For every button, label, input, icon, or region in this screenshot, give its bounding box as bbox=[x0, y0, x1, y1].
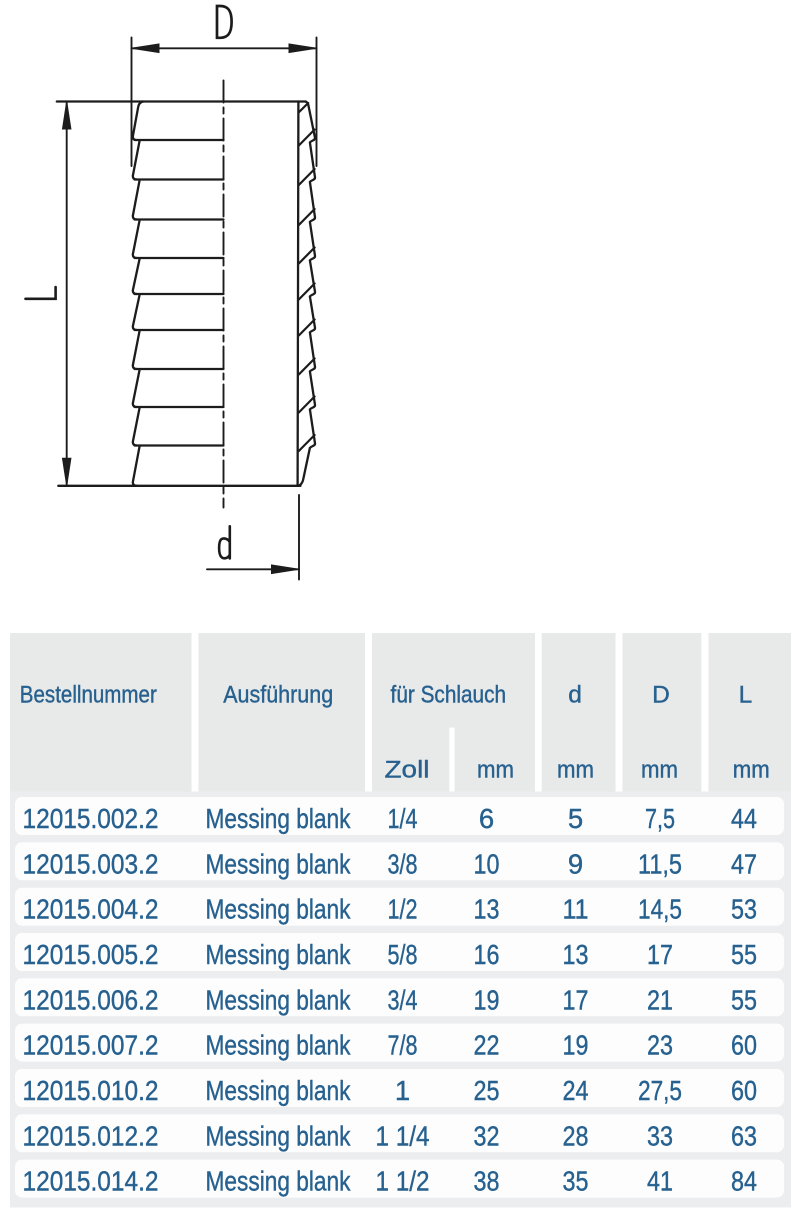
svg-text:mm: mm bbox=[477, 757, 514, 784]
svg-text:11: 11 bbox=[563, 894, 589, 925]
svg-text:12015.004.2: 12015.004.2 bbox=[23, 894, 159, 925]
svg-text:3/4: 3/4 bbox=[388, 984, 418, 1015]
svg-text:3/8: 3/8 bbox=[388, 848, 418, 879]
svg-text:für Schlauch: für Schlauch bbox=[391, 682, 507, 709]
svg-text:12015.002.2: 12015.002.2 bbox=[23, 803, 159, 834]
svg-text:12015.012.2: 12015.012.2 bbox=[23, 1120, 159, 1151]
svg-text:27,5: 27,5 bbox=[638, 1075, 682, 1106]
svg-text:Messing blank: Messing blank bbox=[206, 1166, 351, 1197]
svg-text:22: 22 bbox=[474, 1030, 500, 1061]
svg-text:23: 23 bbox=[647, 1030, 673, 1061]
svg-text:55: 55 bbox=[731, 939, 757, 970]
svg-text:12015.005.2: 12015.005.2 bbox=[23, 939, 159, 970]
svg-text:12015.003.2: 12015.003.2 bbox=[23, 848, 159, 879]
svg-text:17: 17 bbox=[647, 939, 673, 970]
svg-text:12015.010.2: 12015.010.2 bbox=[23, 1075, 159, 1106]
svg-text:38: 38 bbox=[474, 1166, 500, 1197]
svg-text:33: 33 bbox=[647, 1120, 673, 1151]
svg-text:D: D bbox=[652, 682, 670, 709]
svg-text:24: 24 bbox=[563, 1075, 589, 1106]
svg-text:L: L bbox=[739, 682, 753, 709]
svg-text:17: 17 bbox=[563, 984, 589, 1015]
svg-text:mm: mm bbox=[733, 757, 770, 784]
svg-text:Messing blank: Messing blank bbox=[206, 803, 351, 834]
svg-text:12015.014.2: 12015.014.2 bbox=[23, 1166, 159, 1197]
svg-text:1/2: 1/2 bbox=[388, 894, 418, 925]
svg-text:Messing blank: Messing blank bbox=[206, 939, 351, 970]
svg-text:d: d bbox=[568, 682, 582, 709]
svg-text:Ausführung: Ausführung bbox=[223, 682, 333, 709]
svg-text:7,5: 7,5 bbox=[645, 803, 675, 834]
svg-text:41: 41 bbox=[647, 1166, 673, 1197]
svg-text:16: 16 bbox=[474, 939, 500, 970]
svg-text:53: 53 bbox=[731, 894, 757, 925]
svg-text:19: 19 bbox=[474, 984, 500, 1015]
svg-text:1/4: 1/4 bbox=[388, 803, 418, 834]
svg-text:Messing blank: Messing blank bbox=[206, 894, 351, 925]
svg-text:55: 55 bbox=[731, 984, 757, 1015]
svg-text:Messing blank: Messing blank bbox=[206, 1075, 351, 1106]
svg-text:25: 25 bbox=[474, 1075, 500, 1106]
svg-text:12015.007.2: 12015.007.2 bbox=[23, 1030, 159, 1061]
svg-text:32: 32 bbox=[474, 1120, 500, 1151]
svg-text:47: 47 bbox=[731, 848, 757, 879]
svg-text:Bestellnummer: Bestellnummer bbox=[20, 682, 157, 709]
svg-text:Messing blank: Messing blank bbox=[206, 1030, 351, 1061]
svg-text:13: 13 bbox=[563, 939, 589, 970]
svg-text:28: 28 bbox=[563, 1120, 589, 1151]
svg-text:12015.006.2: 12015.006.2 bbox=[23, 984, 159, 1015]
svg-text:11,5: 11,5 bbox=[638, 848, 682, 879]
svg-text:19: 19 bbox=[563, 1030, 589, 1061]
svg-text:9: 9 bbox=[568, 848, 583, 879]
svg-text:1 1/2: 1 1/2 bbox=[376, 1166, 430, 1197]
svg-text:60: 60 bbox=[731, 1030, 757, 1061]
svg-text:1: 1 bbox=[395, 1075, 410, 1106]
svg-text:7/8: 7/8 bbox=[388, 1030, 418, 1061]
svg-text:60: 60 bbox=[731, 1075, 757, 1106]
svg-text:44: 44 bbox=[731, 803, 757, 834]
svg-text:63: 63 bbox=[731, 1120, 757, 1151]
svg-text:21: 21 bbox=[647, 984, 673, 1015]
svg-text:1 1/4: 1 1/4 bbox=[376, 1120, 430, 1151]
svg-text:Messing blank: Messing blank bbox=[206, 848, 351, 879]
svg-text:84: 84 bbox=[731, 1166, 757, 1197]
svg-text:Messing blank: Messing blank bbox=[206, 984, 351, 1015]
svg-text:5: 5 bbox=[568, 803, 583, 834]
svg-text:10: 10 bbox=[474, 848, 500, 879]
svg-text:6: 6 bbox=[479, 803, 494, 834]
svg-text:5/8: 5/8 bbox=[388, 939, 418, 970]
svg-text:Zoll: Zoll bbox=[385, 757, 430, 784]
svg-text:mm: mm bbox=[557, 757, 594, 784]
svg-text:35: 35 bbox=[563, 1166, 589, 1197]
svg-text:mm: mm bbox=[641, 757, 678, 784]
svg-text:Messing blank: Messing blank bbox=[206, 1120, 351, 1151]
svg-text:13: 13 bbox=[474, 894, 500, 925]
svg-text:14,5: 14,5 bbox=[638, 894, 682, 925]
